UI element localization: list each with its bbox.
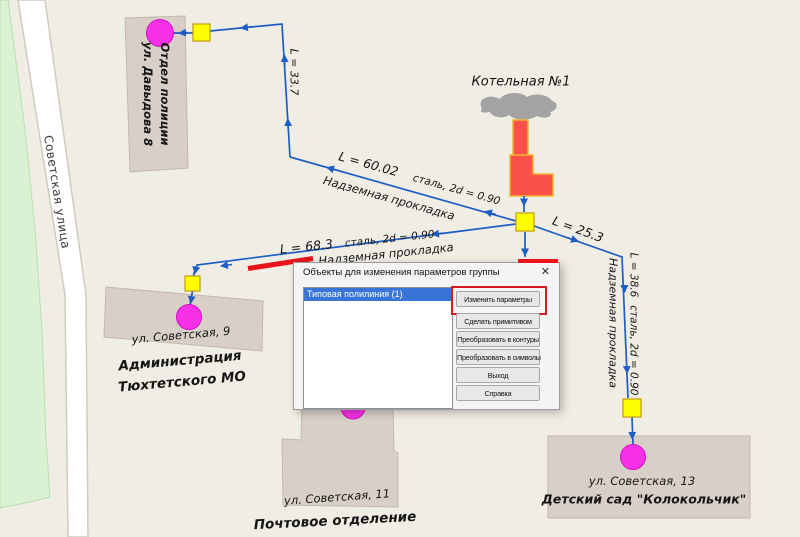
selected-polyline-overlay [518,259,558,263]
flow-arrow [195,267,196,274]
kindergarten-name-label: Детский сад "Колокольчик" [542,492,746,507]
node-square-kindergarten[interactable] [623,399,641,417]
flow-arrow [221,265,232,267]
make-primitive-button[interactable]: Сделать примитивом [456,313,540,329]
node-circle-kindergarten[interactable] [621,445,646,470]
pipe-kindergarten-stub[interactable] [632,418,633,445]
flow-arrow [327,168,338,171]
edit-params-button[interactable]: Изменить параметры [456,291,540,307]
map-canvas[interactable]: Советская улица Отдел полиции ул. Давыдо… [0,0,800,537]
kindergarten-address-label: ул. Советская, 13 [589,474,695,488]
pipe-kindergarten-laying-label: Надземная прокладка [607,258,620,388]
police-building-label: Отдел полиции ул. Давыдова 8 [139,42,173,146]
convert-to-symbols-button[interactable]: Преобразовать в символы [456,349,540,365]
boiler-chimney [513,120,528,156]
police-name: Отдел полиции [156,42,173,146]
flow-arrow [288,119,289,130]
flow-arrow [179,33,188,34]
pipe-police[interactable] [210,24,290,157]
flow-arrow [284,55,285,66]
close-icon[interactable]: ✕ [541,265,550,278]
pipe-police-length-label: L = 33.7 [288,49,301,96]
pipe-kindergarten-label: L = 38.6сталь, 2d = 0.90 [627,253,646,396]
node-square-junction[interactable] [516,213,534,231]
pipe-spec: сталь, 2d = 0.90 [628,305,640,395]
dialog-titlebar[interactable]: Объекты для изменения параметров группы … [294,263,559,284]
pipe-length: L = 38.6 [628,253,640,298]
boiler-building [510,155,553,196]
exit-button[interactable]: Выход [456,367,540,383]
flow-arrow [567,238,578,242]
dialog-title: Объекты для изменения параметров группы [303,267,500,278]
help-button[interactable]: Справка [456,385,540,401]
group-params-dialog: Объекты для изменения параметров группы … [293,262,560,410]
node-square-admin[interactable] [185,276,200,291]
flow-arrow [191,297,192,303]
node-square-police[interactable] [193,24,210,41]
list-item-typical-polyline[interactable]: Типовая полилиния (1) [304,288,452,301]
flow-arrow [624,285,625,292]
boiler-smoke-icon [481,93,557,120]
object-list[interactable]: Типовая полилиния (1) [303,287,453,409]
police-address: ул. Давыдова 8 [139,42,156,146]
boiler-label: Котельная №1 [472,75,571,90]
convert-to-contours-button[interactable]: Преобразовать в контуры [456,331,540,347]
